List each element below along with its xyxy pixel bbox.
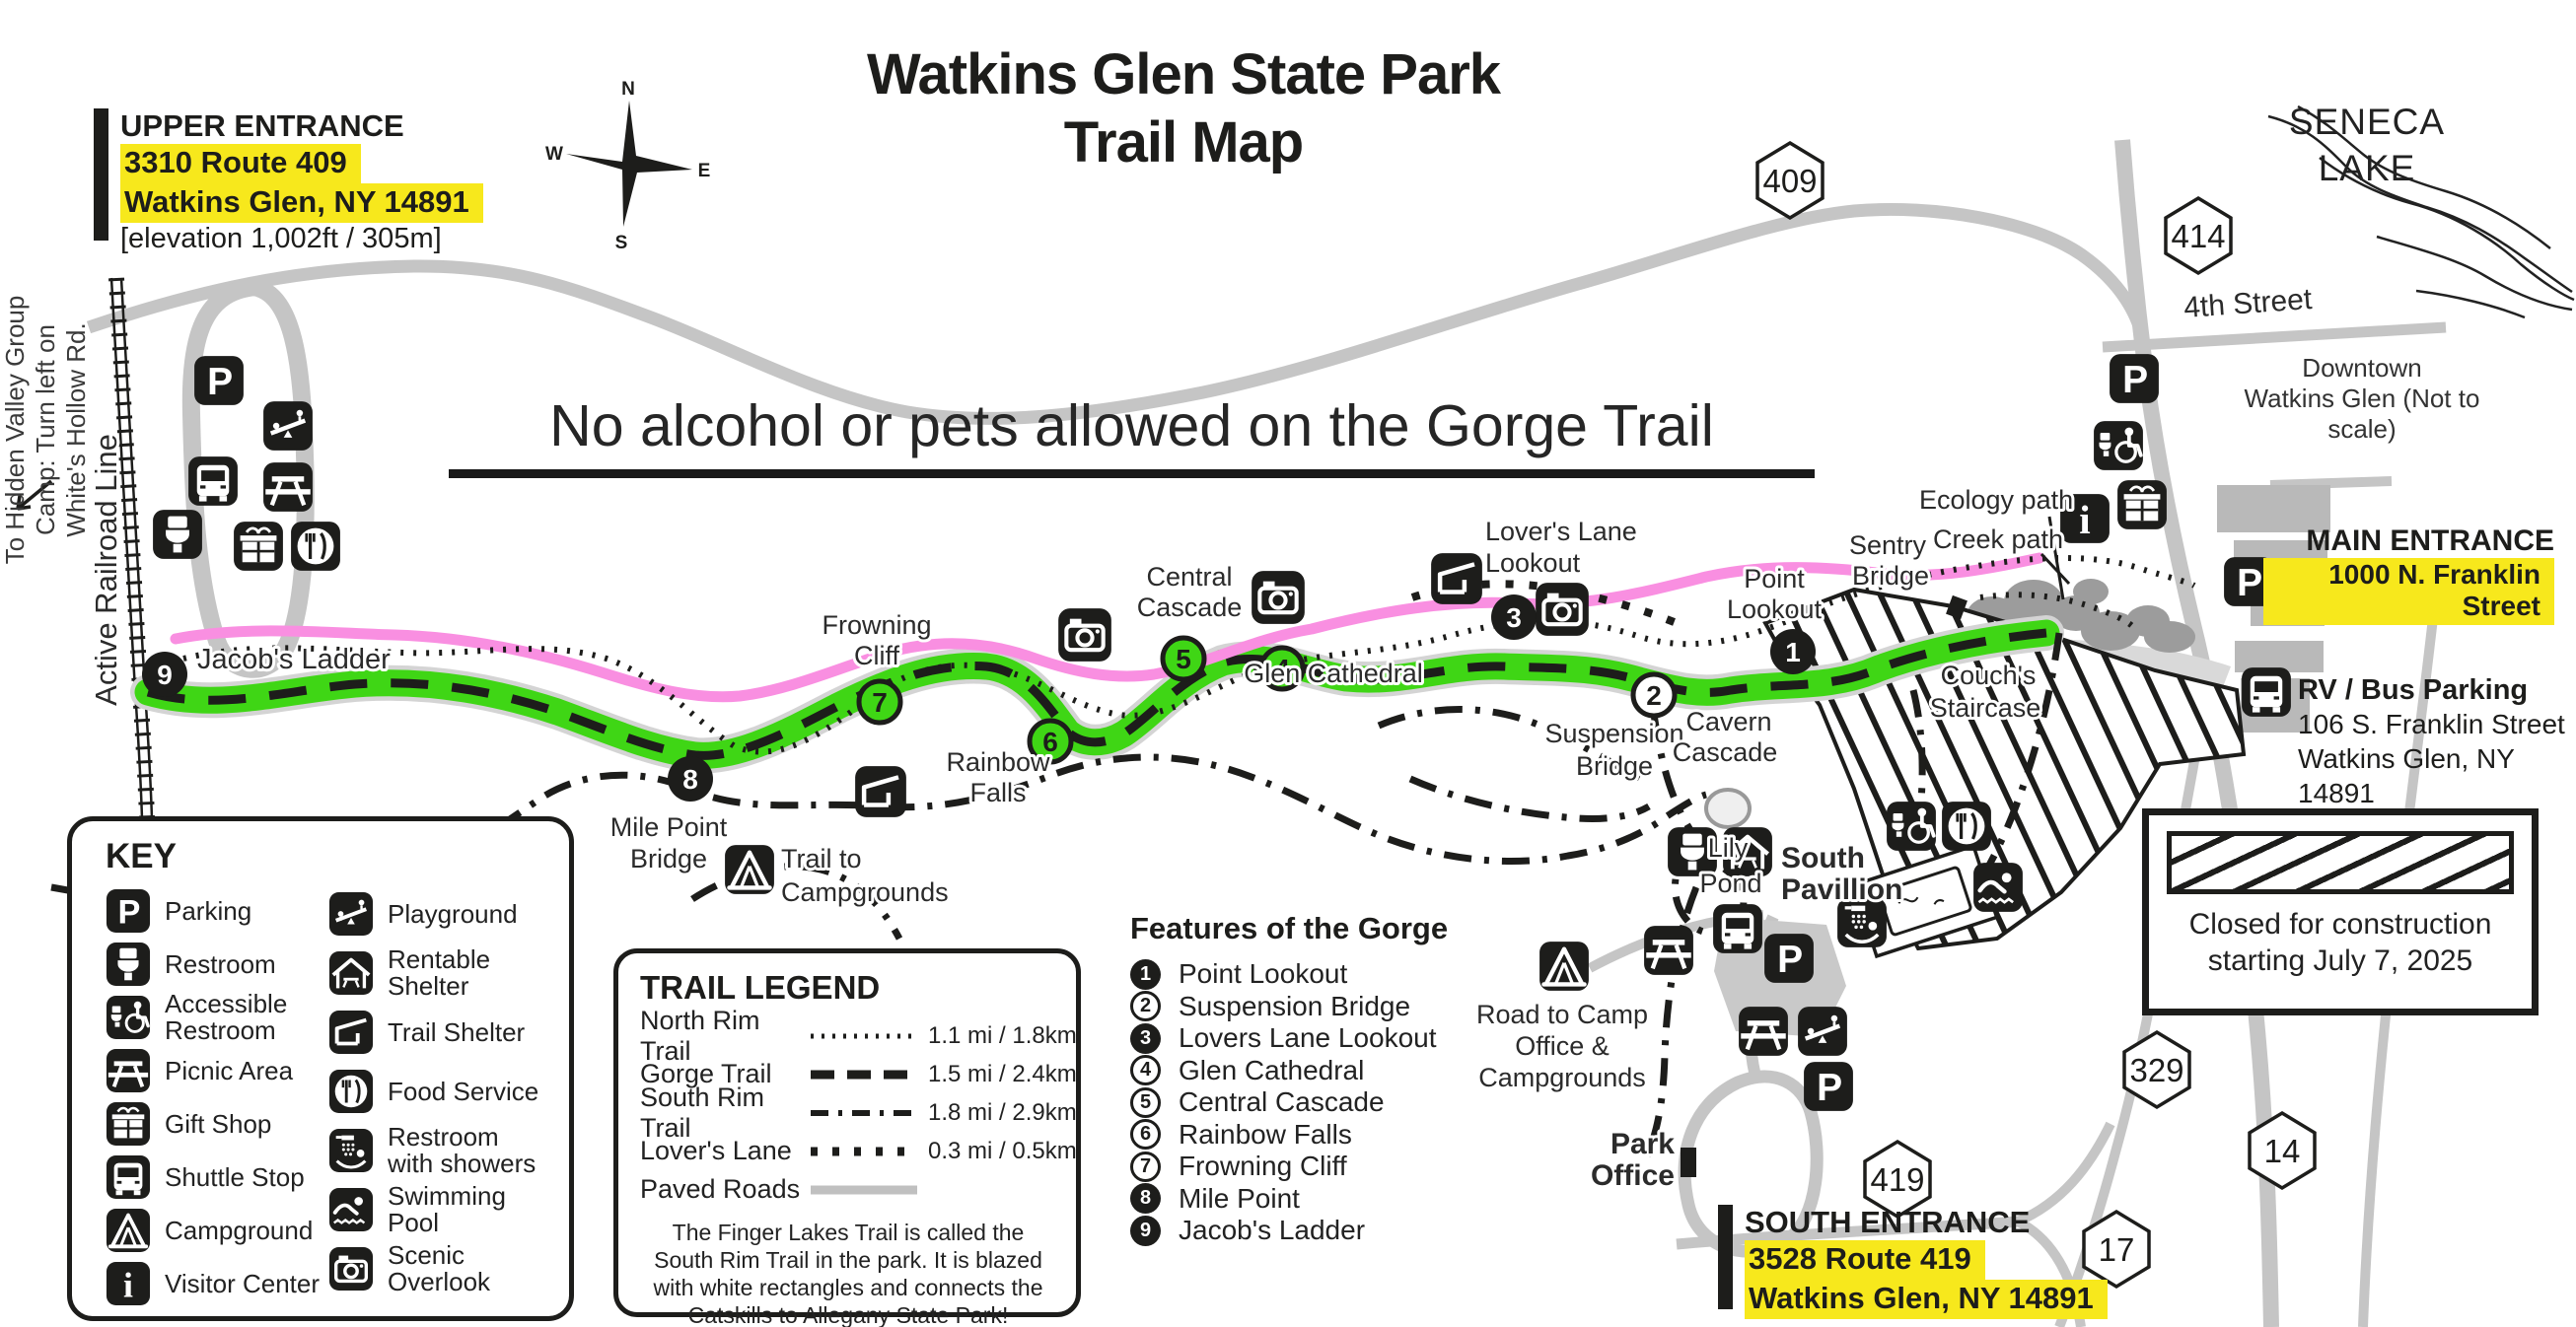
main-entrance-address: 1000 N. Franklin Street (2263, 558, 2554, 625)
label-couchs-staircase-2: Staircase (1930, 693, 2041, 723)
north-rim-line-sample (809, 1031, 918, 1041)
compass-s: S (615, 233, 628, 253)
label-park-office-1: Park (1610, 1128, 1675, 1160)
key-item-restroom: Restroom (106, 938, 321, 991)
label-cavern-cascade-1: Cavern (1685, 707, 1771, 736)
upper-entrance-elevation: [elevation 1,002ft / 305m] (120, 223, 483, 255)
key-label: Shuttle Stop (165, 1164, 305, 1191)
key-item-visitor-center: Visitor Center (106, 1257, 321, 1310)
label-trail-to-campgrounds-1: Trail to (781, 844, 862, 873)
feature-label: Central Cascade (1179, 1086, 1385, 1118)
trail-legend-title: TRAIL LEGEND (640, 969, 1056, 1007)
upper-entrance-address1: 3310 Route 409 (120, 144, 361, 183)
feature-num: 4 (1130, 1055, 1161, 1085)
marker-2: 2 (1633, 674, 1675, 716)
legend-distance: 1.8 mi / 2.9km (918, 1099, 1056, 1127)
scenic-overlook-icon (1252, 571, 1305, 624)
marker-1: 1 (1770, 629, 1816, 674)
downtown-label: Downtown Watkins Glen (Not to scale) (2209, 353, 2515, 445)
key-label: Visitor Center (165, 1271, 320, 1297)
hidden-valley-line1: To Hidden Valley Group (0, 252, 31, 607)
playground-icon (328, 891, 374, 937)
shuttle-icon (106, 1154, 151, 1200)
svg-text:329: 329 (2129, 1052, 2183, 1088)
label-point-lookout-1: Point (1744, 564, 1805, 594)
marker-5: 5 (1163, 638, 1204, 679)
key-item-accessible-restroom: Accessible Restroom (106, 991, 321, 1044)
feature-num: 5 (1130, 1087, 1161, 1118)
feature-label: Rainbow Falls (1179, 1119, 1352, 1151)
label-trail-to-campgrounds-2: Campgrounds (781, 877, 949, 907)
accessible-restroom-icon (106, 995, 151, 1040)
accessible-restroom-icon (2094, 421, 2143, 470)
feature-item-8: 8Mile Point (1130, 1183, 1456, 1216)
feature-item-3: 3Lovers Lane Lookout (1130, 1022, 1456, 1055)
campground-icon (725, 845, 774, 894)
label-mile-point-1: Mile Point (610, 812, 728, 842)
seneca-line2: LAKE (2258, 145, 2475, 191)
feature-num: 1 (1130, 959, 1161, 990)
key-label: Picnic Area (165, 1058, 293, 1084)
lily-pond-shape (1706, 790, 1750, 827)
svg-text:8: 8 (682, 764, 698, 795)
label-road-to-camp-2: Office & (1515, 1031, 1610, 1061)
key-item-parking: Parking (106, 884, 321, 938)
road-4th-street (2103, 327, 2446, 347)
label-lily-pond-2: Pond (1699, 869, 1761, 898)
feature-num: 3 (1130, 1023, 1161, 1054)
trail-shelter-icon (328, 1010, 374, 1055)
label-4th-street: 4th Street (2182, 283, 2314, 324)
svg-text:9: 9 (157, 660, 173, 690)
label-creek-path: Creek path (1933, 524, 2063, 554)
legend-row-south-rim: South Rim Trail 1.8 mi / 2.9km (640, 1093, 1056, 1132)
feature-label: Glen Cathedral (1179, 1055, 1364, 1086)
shower-icon (328, 1128, 374, 1173)
restroom-icon (153, 510, 202, 559)
label-sentry-bridge-2: Bridge (1852, 561, 1929, 591)
key-label: Accessible Restroom (165, 991, 321, 1044)
legend-distance: 0.3 mi / 0.5km (918, 1138, 1056, 1165)
downtown-line1: Downtown (2209, 353, 2515, 384)
food-service-icon (1942, 802, 1991, 851)
upper-entrance-address2: Watkins Glen, NY 14891 (120, 183, 483, 223)
campground-icon (1539, 942, 1589, 991)
picnic-icon (1644, 926, 1693, 975)
key-item-swimming: Swimming Pool (328, 1180, 545, 1239)
trail-legend-panel: TRAIL LEGEND North Rim Trail 1.1 mi / 1.… (613, 948, 1081, 1317)
feature-num: 6 (1130, 1119, 1161, 1150)
svg-text:1: 1 (1785, 637, 1801, 667)
label-lovers-lane-2: Lookout (1485, 548, 1581, 578)
key-title: KEY (106, 837, 557, 876)
legend-row-paved-roads: Paved Roads (640, 1170, 1056, 1209)
marker-8: 8 (668, 756, 713, 802)
marker-9: 9 (142, 652, 187, 697)
feature-num: 2 (1130, 991, 1161, 1021)
parking-icon (2110, 354, 2159, 403)
shuttle-icon (1713, 904, 1762, 953)
label-rainbow-falls-1: Rainbow (946, 747, 1050, 777)
entrance-bar (94, 108, 108, 241)
label-rainbow-falls-2: Falls (969, 778, 1026, 807)
label-suspension-bridge-2: Bridge (1576, 751, 1653, 781)
park-office-building (1681, 1148, 1696, 1177)
label-lily-pond-1: Lily (1708, 833, 1749, 863)
closed-construction-box: Closed for construction starting July 7,… (2142, 808, 2539, 1015)
picnic-icon (106, 1048, 151, 1093)
feature-item-2: 2Suspension Bridge (1130, 991, 1456, 1023)
key-label: Rentable Shelter (388, 946, 545, 1000)
hidden-valley-line3: White's Hollow Rd. (61, 252, 92, 607)
feature-label: Suspension Bridge (1179, 991, 1410, 1022)
main-entrance-title: MAIN ENTRANCE (2263, 524, 2554, 558)
hidden-valley-note: To Hidden Valley Group Camp: Turn left o… (0, 252, 95, 607)
key-item-gift-shop: Gift Shop (106, 1097, 321, 1151)
accessible-restroom-icon (1887, 802, 1936, 851)
parking-icon (1764, 934, 1814, 983)
legend-row-north-rim: North Rim Trail 1.1 mi / 1.8km (640, 1016, 1056, 1055)
svg-text:14: 14 (2264, 1133, 2301, 1169)
main-entrance-block: MAIN ENTRANCE 1000 N. Franklin Street (2263, 524, 2554, 625)
scenic-overlook-icon (1536, 583, 1589, 636)
route-shield-414: 414 (2166, 198, 2231, 273)
closed-line2: starting July 7, 2025 (2167, 943, 2514, 979)
downtown-line2: Watkins Glen (Not to scale) (2209, 384, 2515, 445)
visitor-center-icon (106, 1261, 151, 1306)
features-title: Features of the Gorge (1130, 911, 1456, 946)
scenic-overlook-icon (1058, 608, 1111, 662)
upper-entrance-block: UPPER ENTRANCE 3310 Route 409 Watkins Gl… (94, 108, 483, 255)
south-entrance-title: SOUTH ENTRANCE (1745, 1205, 2108, 1240)
key-label: Playground (388, 901, 518, 928)
legend-name: North Rim Trail (640, 1006, 809, 1067)
hidden-valley-line2: Camp: Turn left on (31, 252, 61, 607)
legend-name: Lover's Lane (640, 1136, 809, 1166)
hatch-swatch (2167, 831, 2514, 894)
rv-address1: 106 S. Franklin Street (2298, 707, 2576, 741)
legend-row-lovers-lane: Lover's Lane 0.3 mi / 0.5km (640, 1132, 1056, 1170)
label-ecology-path: Ecology path (1919, 485, 2073, 515)
label-sentry-bridge-1: Sentry (1849, 530, 1927, 560)
key-item-rentable-shelter: Rentable Shelter (328, 943, 545, 1003)
key-item-scenic-overlook: Scenic Overlook (328, 1239, 545, 1298)
key-panel: KEY Parking Restroom Accessible Restroom… (67, 816, 574, 1321)
label-south-pavillion-2: Pavillion (1781, 873, 1902, 906)
swimming-icon (1973, 863, 2023, 912)
rentable-shelter-icon (328, 950, 374, 996)
page-title-line1: Watkins Glen State Park (789, 39, 1578, 110)
feature-label: Frowning Cliff (1179, 1151, 1347, 1182)
label-road-to-camp-1: Road to Camp (1476, 1000, 1648, 1029)
no-alcohol-banner: No alcohol or pets allowed on the Gorge … (449, 392, 1815, 478)
lovers-lane-line-sample (809, 1146, 918, 1157)
label-park-office-2: Office (1591, 1159, 1675, 1192)
legend-distance: 1.1 mi / 1.8km (918, 1022, 1056, 1050)
rv-address2: Watkins Glen, NY 14891 (2298, 741, 2576, 810)
legend-distance: 1.5 mi / 2.4km (918, 1061, 1056, 1088)
svg-text:2: 2 (1646, 680, 1662, 711)
key-item-shower: Restroom with showers (328, 1121, 545, 1180)
feature-label: Lovers Lane Lookout (1179, 1022, 1437, 1054)
feature-label: Point Lookout (1179, 958, 1347, 990)
entrance-bar (1718, 1205, 1733, 1309)
compass-n: N (621, 79, 635, 100)
key-label: Food Service (388, 1079, 538, 1105)
road-side-street (2270, 481, 2392, 485)
label-central-cascade-1: Central (1146, 562, 1232, 592)
parking-icon (194, 356, 244, 405)
label-jacobs-ladder: Jacob's Ladder (197, 644, 391, 675)
parking-icon (106, 888, 151, 934)
swimming-icon (328, 1187, 374, 1232)
key-label: Swimming Pool (388, 1183, 545, 1236)
paved-road-line-sample (809, 1184, 918, 1196)
compass-rose-icon: N E S W (545, 79, 710, 253)
gift-shop-icon (2117, 480, 2167, 529)
trail-shelter-icon (1431, 553, 1482, 604)
south-rim-line-sample (809, 1108, 918, 1118)
south-entrance-address2: Watkins Glen, NY 14891 (1745, 1280, 2108, 1319)
features-panel: Features of the Gorge 1Point Lookout 2Su… (1130, 911, 1456, 1247)
key-item-playground: Playground (328, 884, 545, 943)
svg-text:7: 7 (872, 687, 888, 718)
label-mile-point-2: Bridge (630, 844, 707, 873)
parking-icon (1804, 1062, 1853, 1111)
marker-3: 3 (1491, 594, 1537, 640)
restroom-icon (106, 942, 151, 987)
page-title: Watkins Glen State Park Trail Map (789, 39, 1578, 175)
gift-shop-icon (234, 522, 283, 571)
svg-text:3: 3 (1506, 602, 1522, 633)
label-lovers-lane-1: Lover's Lane (1485, 517, 1637, 546)
key-item-picnic: Picnic Area (106, 1044, 321, 1097)
seneca-lake-label: SENECA LAKE (2258, 99, 2475, 191)
label-suspension-bridge-1: Suspension (1544, 719, 1683, 748)
feature-num: 8 (1130, 1183, 1161, 1214)
feature-item-7: 7Frowning Cliff (1130, 1151, 1456, 1183)
shuttle-icon (188, 456, 238, 506)
page-title-line2: Trail Map (789, 110, 1578, 175)
key-item-shuttle: Shuttle Stop (106, 1151, 321, 1204)
label-south-pavillion-1: South (1781, 842, 1865, 874)
svg-text:409: 409 (1762, 163, 1817, 199)
key-item-food-service: Food Service (328, 1062, 545, 1121)
key-item-campground: Campground (106, 1204, 321, 1257)
label-glen-cathedral: Glen Cathedral (1244, 659, 1423, 688)
gift-shop-icon (106, 1101, 151, 1147)
rv-title: RV / Bus Parking (2298, 674, 2576, 707)
food-service-icon (328, 1069, 374, 1114)
upper-entrance-title: UPPER ENTRANCE (120, 108, 483, 144)
picnic-icon (263, 462, 313, 512)
banner-underline (449, 469, 1815, 478)
legend-name: Paved Roads (640, 1174, 809, 1205)
south-entrance-address1: 3528 Route 419 (1745, 1240, 1985, 1280)
closed-line1: Closed for construction (2167, 906, 2514, 943)
banner-text: No alcohol or pets allowed on the Gorge … (449, 392, 1815, 459)
key-item-trail-shelter: Trail Shelter (328, 1003, 545, 1062)
key-label: Campground (165, 1218, 313, 1244)
feature-item-6: 6Rainbow Falls (1130, 1119, 1456, 1152)
marker-7: 7 (859, 681, 900, 723)
feature-item-5: 5Central Cascade (1130, 1086, 1456, 1119)
seneca-line1: SENECA (2258, 99, 2475, 145)
label-point-lookout-2: Lookout (1727, 594, 1823, 624)
finger-lakes-note: The Finger Lakes Trail is called the Sou… (640, 1219, 1056, 1327)
south-entrance-block: SOUTH ENTRANCE 3528 Route 419 Watkins Gl… (1718, 1205, 2108, 1319)
compass-w: W (545, 144, 563, 165)
label-frowning-cliff-1: Frowning (822, 610, 931, 640)
key-label: Gift Shop (165, 1111, 271, 1138)
playground-icon (1798, 1007, 1847, 1056)
key-label: Trail Shelter (388, 1019, 525, 1046)
key-label: Scenic Overlook (388, 1242, 545, 1295)
feature-item-9: 9Jacob's Ladder (1130, 1215, 1456, 1247)
route-shield-409: 409 (1757, 143, 1823, 218)
label-road-to-camp-3: Campgrounds (1478, 1063, 1646, 1092)
rv-bus-icon (2242, 667, 2291, 717)
svg-text:414: 414 (2171, 218, 2225, 254)
feature-item-4: 4Glen Cathedral (1130, 1055, 1456, 1087)
svg-text:5: 5 (1176, 644, 1191, 674)
key-label: Parking (165, 898, 251, 925)
trail-shelter-icon (855, 766, 906, 817)
label-couchs-staircase-1: Couch's (1941, 661, 2037, 690)
compass-e: E (698, 161, 711, 181)
label-cavern-cascade-2: Cascade (1673, 737, 1778, 767)
scenic-overlook-icon (328, 1246, 374, 1292)
food-service-icon (291, 522, 340, 571)
feature-label: Mile Point (1179, 1183, 1300, 1215)
gorge-line-sample (809, 1069, 918, 1081)
feature-item-1: 1Point Lookout (1130, 958, 1456, 991)
key-label: Restroom (165, 951, 276, 978)
svg-text:419: 419 (1870, 1161, 1924, 1198)
campground-icon (106, 1208, 151, 1253)
key-label: Restroom with showers (388, 1124, 545, 1177)
picnic-icon (1739, 1007, 1788, 1056)
feature-label: Jacob's Ladder (1179, 1215, 1365, 1246)
label-frowning-cliff-2: Cliff (854, 641, 900, 670)
feature-num: 7 (1130, 1152, 1161, 1182)
label-central-cascade-2: Cascade (1137, 593, 1243, 622)
legend-name: South Rim Trail (640, 1083, 809, 1144)
trail-map-page: P (0, 0, 2576, 1327)
playground-icon (263, 401, 313, 451)
feature-num: 9 (1130, 1216, 1161, 1246)
